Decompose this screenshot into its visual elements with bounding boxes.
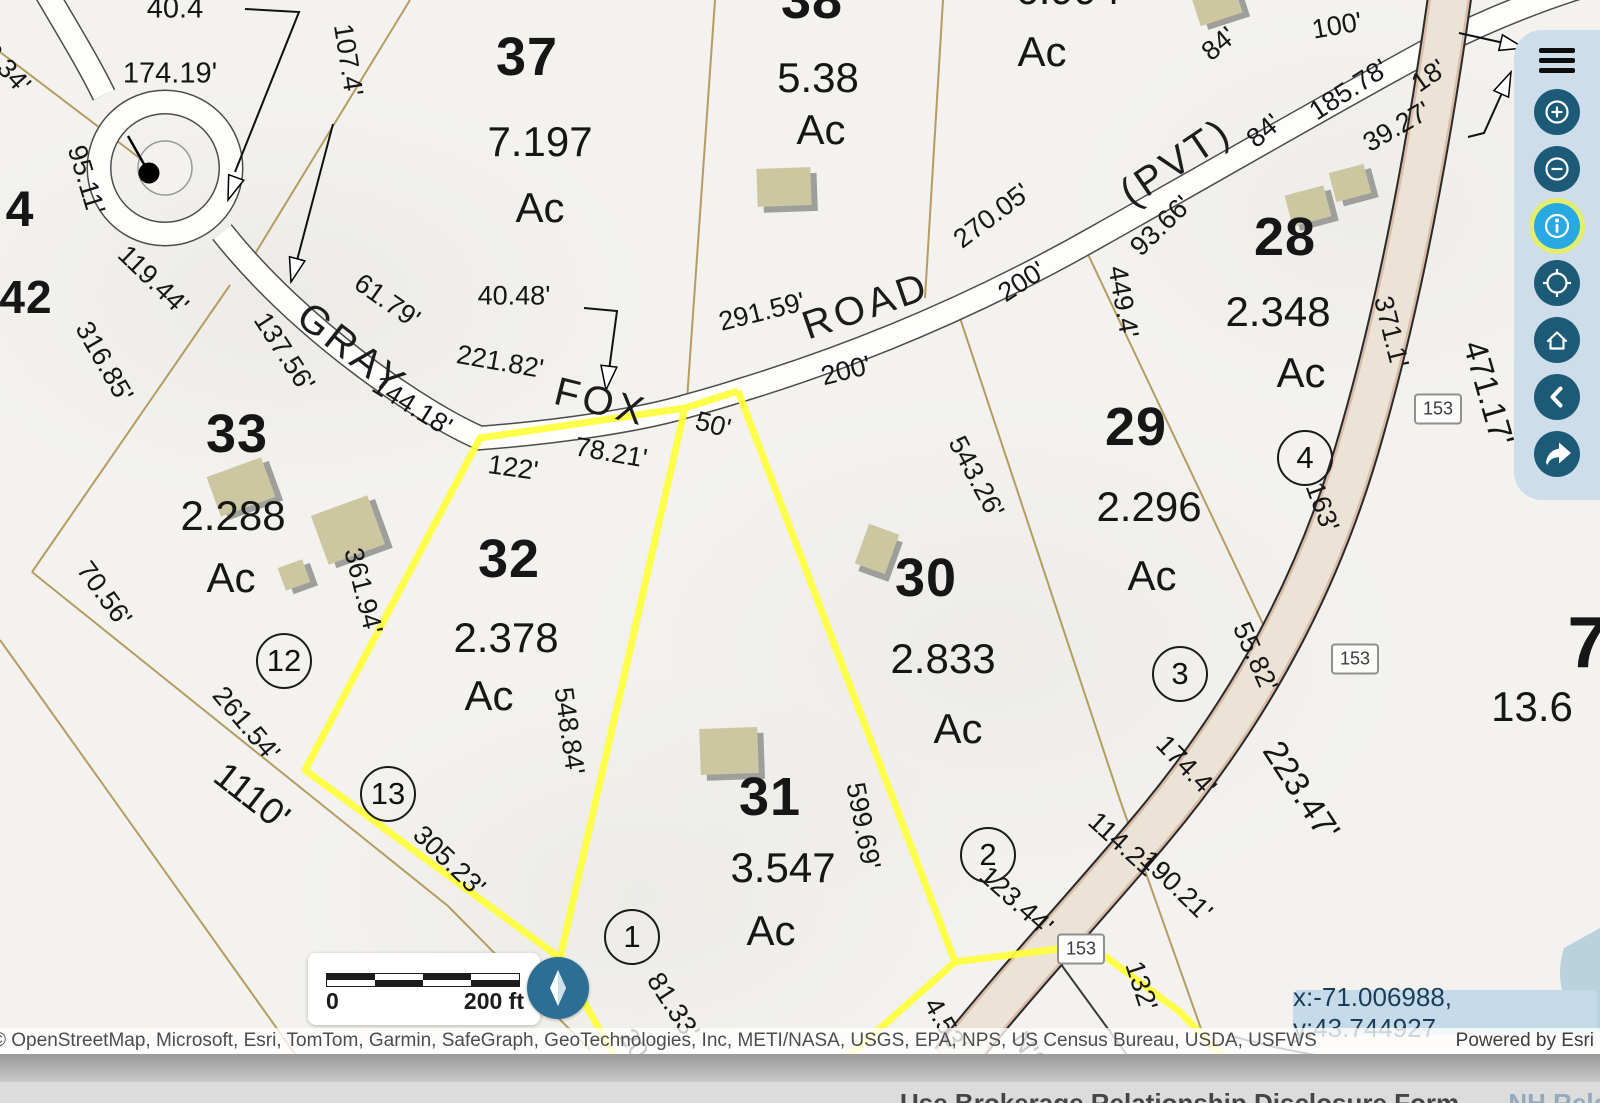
acreage-label: 3.547: [730, 847, 835, 889]
powered-by-esri: Powered by Esri: [1456, 1030, 1594, 1052]
acreage-label: 2.348: [1225, 291, 1330, 333]
acreage-label: 5.38: [777, 57, 859, 99]
acreage-label: 2.296: [1096, 486, 1201, 528]
acreage-label: Ac: [515, 187, 564, 229]
lot-circle-number: 13: [360, 766, 416, 822]
acreage-label: Ac: [1127, 555, 1176, 597]
parcel-number-label: 32: [478, 532, 540, 586]
back-button[interactable]: [1534, 374, 1580, 420]
dimension-label: 174.19': [123, 60, 217, 89]
compass-needle-icon: [527, 957, 589, 1019]
acreage-label: 7.197: [487, 121, 592, 163]
lot-circle-number: 2: [960, 827, 1016, 883]
building-footprint: [756, 167, 811, 207]
lot-circle-number: 12: [256, 633, 312, 689]
zoom-out-icon: [1537, 149, 1577, 189]
parcel-number-label: 42: [0, 274, 53, 320]
scale-end-label: 200 ft: [464, 988, 524, 1015]
scale-start-label: 0: [326, 988, 339, 1015]
parcel-number-label: 31: [739, 770, 801, 824]
info-icon: [1537, 206, 1577, 246]
acreage-label: 2.833: [890, 638, 995, 680]
attribution-sources: © OpenStreetMap, Microsoft, Esri, TomTom…: [0, 1030, 1317, 1052]
crosshair-icon: [1537, 263, 1577, 303]
acreage-label: Ac: [1276, 352, 1325, 394]
dimension-label: 122': [486, 451, 539, 485]
acreage-label: Ac: [206, 557, 255, 599]
compass-button[interactable]: [527, 957, 589, 1019]
parcel-number-label: 38: [781, 0, 843, 27]
acreage-label: 13.6: [1491, 686, 1573, 728]
page-footer-strip: Use Brokerage Relationship Disclosure Fo…: [0, 1082, 1600, 1103]
acreage-label: 2.288: [180, 495, 285, 537]
acreage-label: Ac: [796, 109, 845, 151]
home-icon: [1537, 320, 1577, 360]
lot-circle-number: 1: [604, 909, 660, 965]
parcel-number-label: 37: [496, 30, 558, 84]
dimension-label: 40.48': [478, 283, 551, 310]
acreage-label: 2.378: [453, 617, 558, 659]
parcel-number-label: 7: [1567, 607, 1600, 679]
zoom-in-icon: [1537, 92, 1577, 132]
scale-bar-checker: [326, 973, 520, 987]
chevron-left-icon: [1537, 377, 1577, 417]
dimension-label: 40.4: [147, 0, 203, 24]
locate-button[interactable]: [1534, 260, 1580, 306]
identify-button[interactable]: [1534, 203, 1580, 249]
zoom-in-button[interactable]: [1534, 89, 1580, 135]
footer-link-relocation[interactable]: NH Relocation: [1508, 1088, 1600, 1103]
zoom-out-button[interactable]: [1534, 146, 1580, 192]
map-canvas[interactable]: 40.4174.19'107.4'6.34'95.11'119.44'316.8…: [0, 0, 1600, 1054]
page-gray-band: [0, 1054, 1600, 1082]
acreage-label: Ac: [746, 910, 795, 952]
parcel-number-label: 28: [1254, 210, 1316, 264]
acreage-label: 6.994: [1015, 0, 1120, 11]
acreage-label: Ac: [933, 708, 982, 750]
menu-icon[interactable]: [1534, 42, 1580, 78]
route-153-shield: 153: [1414, 394, 1462, 425]
share-button[interactable]: [1534, 431, 1580, 477]
route-153-shield: 153: [1057, 934, 1105, 965]
lot-circle-number: 3: [1152, 646, 1208, 702]
route-153-shield: 153: [1331, 644, 1379, 675]
home-button[interactable]: [1534, 317, 1580, 363]
acreage-label: Ac: [464, 675, 513, 717]
share-arrow-icon: [1537, 434, 1577, 474]
acreage-label: Ac: [1017, 31, 1066, 73]
parcel-number-label: 29: [1105, 400, 1167, 454]
attribution-bar: © OpenStreetMap, Microsoft, Esri, TomTom…: [0, 1028, 1600, 1054]
lot-circle-number: 4: [1277, 430, 1333, 486]
parcel-number-label: 4: [6, 184, 35, 234]
parcel-number-label: 33: [206, 407, 268, 461]
scale-bar: 0 200 ft: [308, 953, 540, 1025]
footer-link-disclosure[interactable]: Use Brokerage Relationship Disclosure Fo…: [900, 1088, 1459, 1103]
map-toolbar: [1514, 30, 1600, 500]
parcel-number-label: 30: [895, 551, 957, 605]
